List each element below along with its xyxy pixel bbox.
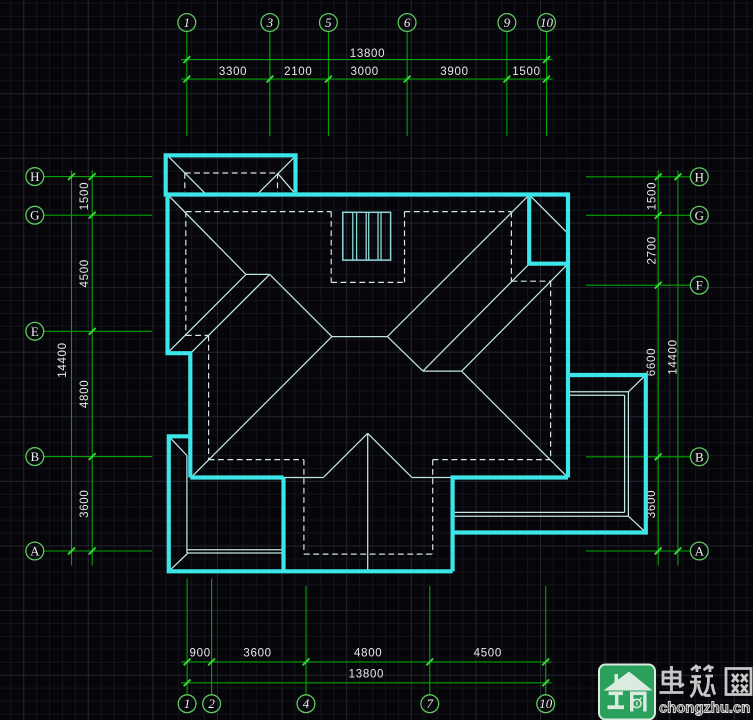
svg-text:14400: 14400 — [57, 342, 69, 377]
svg-text:4800: 4800 — [354, 648, 382, 660]
svg-text:F: F — [696, 278, 703, 293]
svg-text:B: B — [695, 449, 704, 464]
svg-text:3600: 3600 — [243, 648, 271, 660]
svg-text:chongzhu.cn: chongzhu.cn — [659, 701, 750, 717]
svg-text:H: H — [695, 169, 704, 184]
svg-text:3000: 3000 — [351, 66, 379, 78]
svg-text:H: H — [30, 169, 39, 184]
svg-text:5: 5 — [325, 15, 332, 30]
svg-text:10: 10 — [539, 696, 553, 711]
svg-text:2100: 2100 — [284, 66, 312, 78]
svg-text:3300: 3300 — [219, 66, 247, 78]
svg-text:1500: 1500 — [512, 66, 540, 78]
svg-text:A: A — [695, 544, 705, 559]
svg-text:2700: 2700 — [647, 236, 659, 264]
svg-text:A: A — [30, 544, 40, 559]
svg-text:14400: 14400 — [668, 339, 680, 374]
svg-text:6600: 6600 — [646, 348, 658, 376]
svg-text:1500: 1500 — [79, 182, 91, 210]
svg-text:3: 3 — [266, 15, 274, 30]
svg-text:4: 4 — [303, 696, 310, 711]
svg-text:10: 10 — [540, 15, 554, 30]
svg-text:7: 7 — [427, 696, 434, 711]
svg-text:4500: 4500 — [79, 259, 91, 287]
svg-text:1500: 1500 — [647, 182, 659, 210]
svg-text:900: 900 — [190, 648, 211, 660]
svg-text:G: G — [30, 208, 39, 223]
svg-text:E: E — [31, 324, 39, 339]
svg-text:G: G — [695, 208, 704, 223]
svg-text:2: 2 — [208, 696, 215, 711]
svg-text:B: B — [30, 449, 39, 464]
svg-text:4800: 4800 — [79, 380, 91, 408]
svg-text:3900: 3900 — [440, 66, 468, 78]
svg-text:4500: 4500 — [474, 648, 502, 660]
svg-text:13800: 13800 — [350, 48, 385, 60]
svg-text:9: 9 — [504, 15, 511, 30]
svg-text:3600: 3600 — [79, 490, 91, 518]
svg-text:13800: 13800 — [349, 669, 384, 681]
svg-text:1: 1 — [184, 696, 191, 711]
svg-text:1: 1 — [184, 15, 191, 30]
svg-text:6: 6 — [404, 15, 411, 30]
